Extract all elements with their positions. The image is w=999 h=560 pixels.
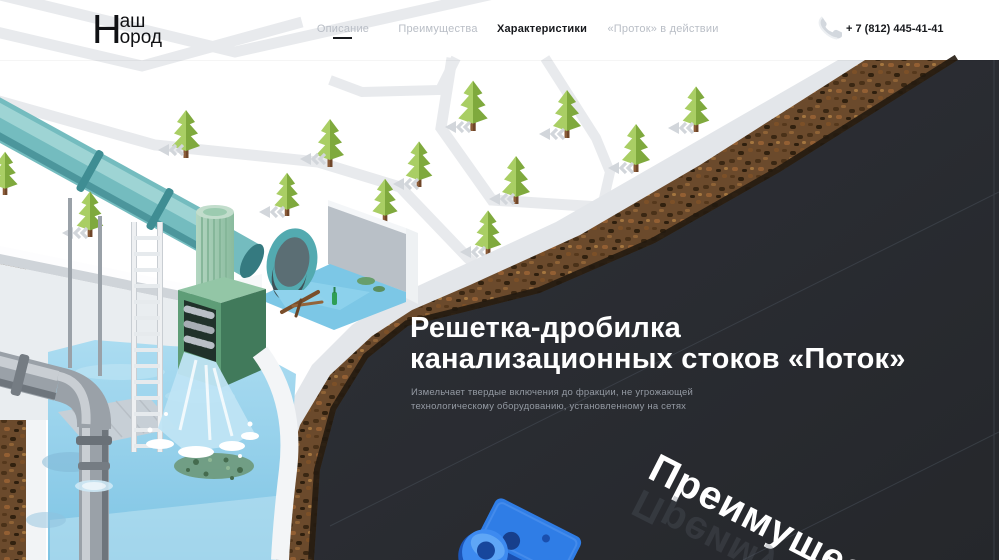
phone-handset-icon[interactable] <box>816 13 842 45</box>
page-title-line1: Решетка-дробилка <box>410 313 906 344</box>
nav-item-advantages[interactable]: Преимущества <box>398 23 477 35</box>
sewage-system-illustration <box>0 0 999 560</box>
active-nav-underline <box>333 37 352 39</box>
page-title-line2: канализационных стоков «Поток» <box>410 344 906 375</box>
nav-item-in-action[interactable]: «Проток» в действии <box>607 23 718 35</box>
page-title: Решетка-дробилка канализационных стоков … <box>410 313 906 375</box>
logo-bottom-part: ород <box>120 30 162 46</box>
logo-big-letter: Н <box>92 8 120 50</box>
logo-wordmark: аш ород <box>120 14 162 50</box>
page-subtitle-line2: технологическому оборудованию, установле… <box>411 400 906 414</box>
phone-number[interactable]: + 7 (812) 445-41-41 <box>846 23 944 35</box>
page-subtitle-line1: Измельчает твердые включения до фракции,… <box>411 386 906 400</box>
hero-block: Решетка-дробилка канализационных стоков … <box>410 313 906 414</box>
nav-item-description[interactable]: Описание <box>317 23 369 35</box>
top-navigation-bar: Н аш ород Описание Преимущества Характер… <box>0 0 999 61</box>
landing-page: Преимущества Преимущества Решетка-дробил… <box>0 0 999 560</box>
logo[interactable]: Н аш ород <box>92 8 162 50</box>
nav-item-specifications[interactable]: Характеристики <box>497 23 587 35</box>
page-subtitle: Измельчает твердые включения до фракции,… <box>411 386 906 414</box>
